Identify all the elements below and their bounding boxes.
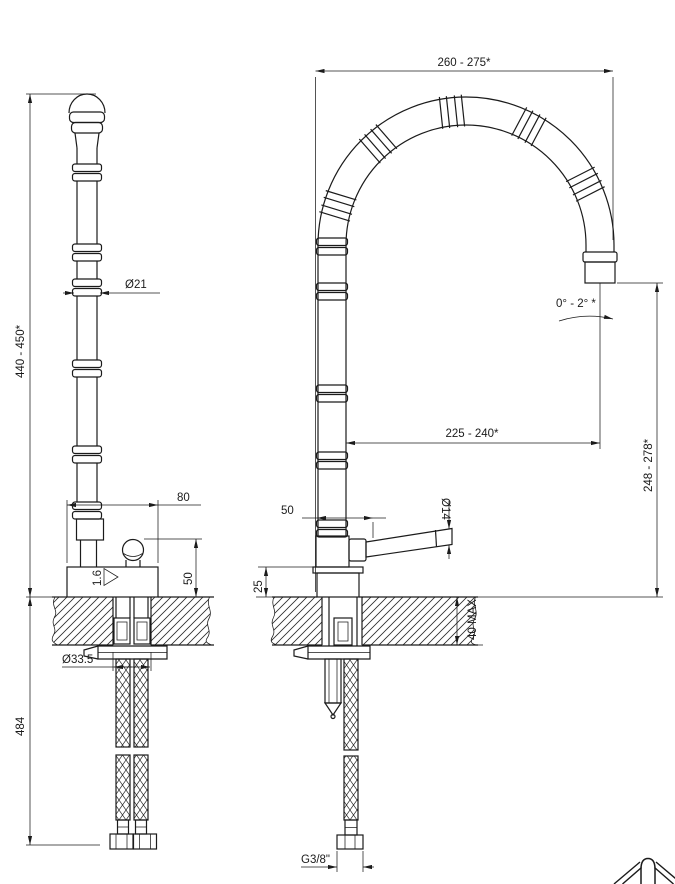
faucet-body (313, 536, 363, 597)
spout-column (69, 94, 105, 567)
mounting-stud (325, 659, 341, 719)
lever-diameter-label: Ø14 (439, 498, 451, 520)
dim-lever-diameter: Ø14 (439, 498, 451, 559)
surface-finish-label: 1.6 (92, 570, 104, 586)
supply-hoses (110, 659, 157, 849)
dim-spout-width: 260 - 275* (316, 57, 614, 592)
front-view: 260 - 275* 225 - 240* 248 - 278* 0° - 2°… (253, 57, 663, 872)
dim-overall-height: 440 - 450* (15, 94, 96, 597)
overall-height-label: 440 - 450* (15, 324, 27, 378)
counter-thickness-label: 40 MAX (467, 599, 479, 640)
base-width-label: 80 (177, 492, 190, 504)
dim-spout-height: 248 - 278* (478, 283, 663, 597)
spout-height-label: 248 - 278* (643, 438, 655, 492)
hose-length-label: 484 (15, 716, 27, 736)
ball-knob (123, 540, 144, 568)
body-height-label: 25 (253, 580, 265, 593)
faucet-dimension-drawing: 1.6 (0, 0, 675, 884)
spout-arch (317, 95, 618, 537)
dim-knob-height: 50 (144, 539, 202, 597)
spout-reach-label: 225 - 240* (445, 428, 499, 440)
dim-tilt-angle: 0° - 2° * (556, 298, 613, 321)
dim-body-height: 25 (253, 567, 313, 597)
knob-height-label: 50 (183, 572, 195, 585)
mounting-bracket (294, 646, 370, 659)
lever-handle (349, 529, 452, 562)
spout-width-label: 260 - 275* (437, 57, 491, 69)
dim-thread-size: G3/8" (301, 851, 374, 872)
technical-drawing-page: 1.6 (0, 0, 675, 884)
hole-diameter-label: Ø33.5 (62, 654, 93, 666)
thread-size-label: G3/8" (301, 854, 330, 866)
hose-nuts (110, 834, 157, 849)
side-view: 1.6 (15, 94, 214, 849)
tilt-angle-label: 0° - 2° * (556, 298, 596, 310)
mounting-bracket (84, 646, 167, 659)
countertop-section-right (271, 597, 478, 645)
surface-finish-symbol: 1.6 (92, 569, 118, 587)
spout-outlet (583, 252, 617, 283)
dim-lever-offset: 50 (281, 505, 386, 538)
lever-offset-label: 50 (281, 505, 294, 517)
countertop-section-left (52, 597, 214, 645)
hose-nut (337, 835, 363, 849)
column-diameter-label: Ø21 (125, 279, 147, 291)
hand-icon (614, 859, 675, 884)
dim-base-width: 80 (67, 492, 201, 563)
